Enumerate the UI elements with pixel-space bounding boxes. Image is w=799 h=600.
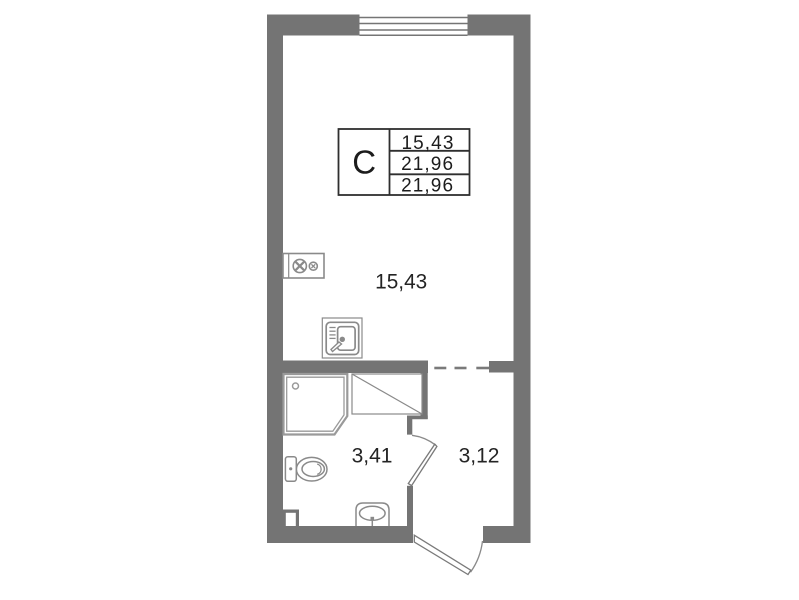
svg-text:21,96: 21,96 (401, 154, 454, 175)
svg-text:С: С (352, 144, 376, 181)
svg-text:3,41: 3,41 (352, 445, 393, 468)
svg-text:21,96: 21,96 (401, 175, 454, 196)
svg-text:15,43: 15,43 (375, 271, 427, 294)
svg-text:15,43: 15,43 (401, 133, 454, 154)
svg-text:3,12: 3,12 (459, 445, 500, 468)
